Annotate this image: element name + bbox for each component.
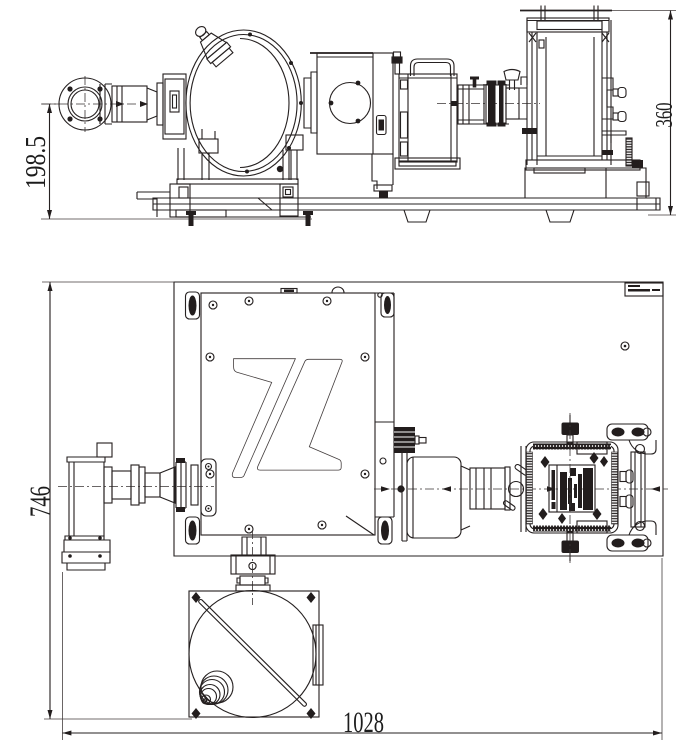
svg-text:746: 746 xyxy=(25,486,57,517)
svg-text:360: 360 xyxy=(652,103,678,128)
svg-text:1028: 1028 xyxy=(343,706,384,739)
svg-text:198.5: 198.5 xyxy=(21,136,52,189)
